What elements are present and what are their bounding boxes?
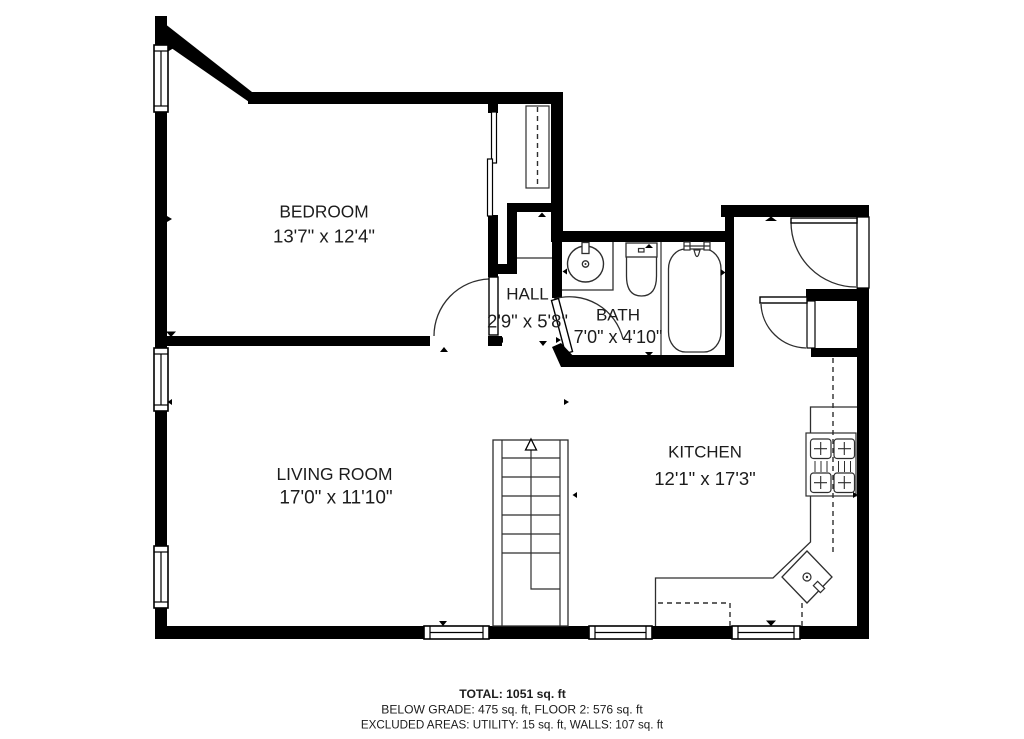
svg-text:EXCLUDED AREAS: UTILITY: 15 sq: EXCLUDED AREAS: UTILITY: 15 sq. ft, WALL… [361, 719, 664, 732]
svg-text:TOTAL: 1051 sq. ft: TOTAL: 1051 sq. ft [459, 687, 566, 701]
svg-text:7'0" x 4'10": 7'0" x 4'10" [574, 327, 663, 347]
svg-text:2'9" x 5'8": 2'9" x 5'8" [487, 311, 568, 332]
svg-text:BEDROOM: BEDROOM [279, 202, 368, 222]
svg-text:KITCHEN: KITCHEN [668, 443, 742, 462]
svg-text:BATH: BATH [596, 306, 640, 325]
svg-text:HALL: HALL [506, 285, 549, 304]
svg-text:17'0" x 11'10": 17'0" x 11'10" [279, 488, 392, 509]
svg-text:LIVING ROOM: LIVING ROOM [277, 464, 393, 484]
svg-text:BELOW GRADE: 475 sq. ft, FLOOR: BELOW GRADE: 475 sq. ft, FLOOR 2: 576 sq… [381, 702, 643, 716]
svg-text:13'7" x 12'4": 13'7" x 12'4" [273, 225, 375, 246]
svg-text:12'1" x 17'3": 12'1" x 17'3" [654, 468, 755, 489]
